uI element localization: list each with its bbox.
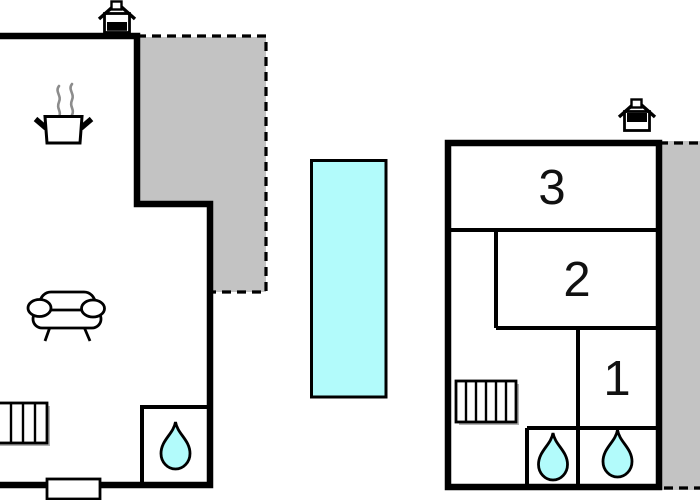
terrace-right [659,141,700,490]
house-icon-black-half [107,22,127,31]
right-building: 3 2 1 [445,100,662,491]
radiator-icon [0,403,50,446]
room-label-2: 2 [563,253,590,307]
sofa-armrest-left [28,300,51,317]
house-icon-chimney [632,100,642,108]
swimming-pool [312,161,387,398]
floor-plan: 3 2 1 [0,0,700,500]
sofa-armrest-right [82,300,105,317]
floor-plan-canvas: 3 2 1 [0,0,700,500]
room-label-3: 3 [538,161,565,215]
pot-body [45,117,82,144]
entrance-door [47,479,100,499]
house-orientation-icon [619,100,655,131]
radiator-icon [456,381,519,425]
house-orientation-icon [99,2,135,33]
room-label-1: 1 [603,352,630,406]
house-icon-black-half [627,113,647,122]
house-icon-chimney [112,2,122,10]
terrace-right-fill [661,141,700,490]
pool-water [312,161,387,398]
